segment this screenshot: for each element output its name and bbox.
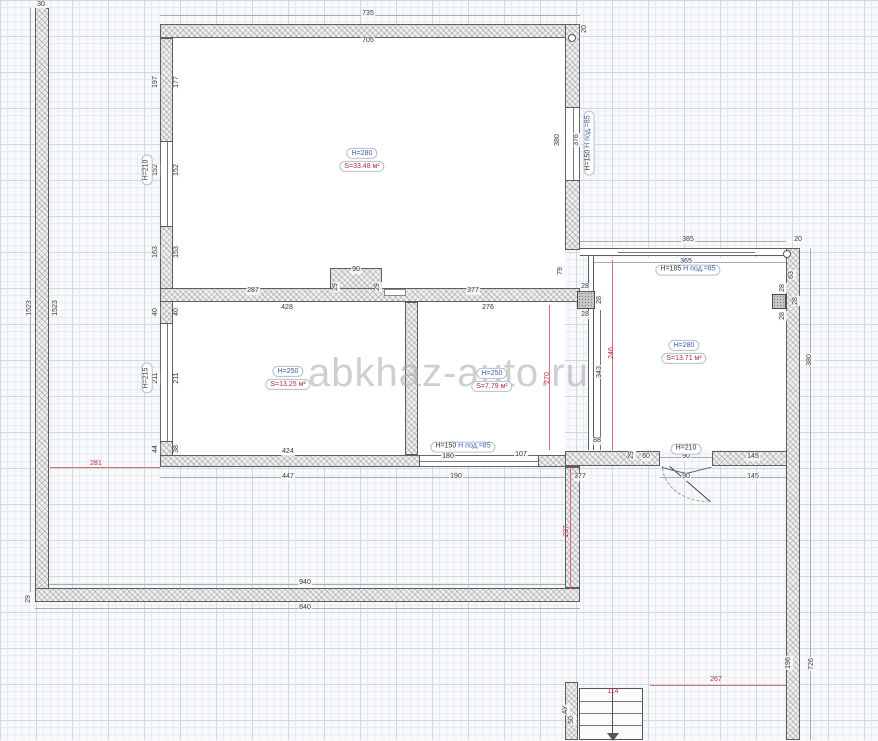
wall-segment-left-boundary [35,8,49,592]
opening-label: H=210 [142,155,153,186]
opening-label: H=150 H под.=85 [584,110,595,175]
dimension-label: 270 [544,371,552,385]
dimension-label: 1523 [52,299,60,317]
dimension-label: 705 [361,37,375,45]
dimension-label: 90 [681,473,691,481]
room-label-room-right: H=280S=13.71 м² [661,340,706,364]
dimension-label: 114 [606,688,619,696]
stair-tread [580,701,642,702]
dimension-label: 376 [573,133,581,147]
dimension-label: 343 [596,365,604,379]
window-opening-right-room-top [618,248,755,256]
opening-label: H=210 [671,444,702,455]
dimension-label: 79 [557,266,565,276]
door-swing-arc [662,466,708,502]
room-label-room-lower-left: H=250S=13.25 м² [265,366,310,390]
dimension-line [600,310,601,450]
room-height-label: H=280 [347,148,378,159]
floor-plan-canvas: abkhaz-auto.ru 3073570520197177152152163… [0,0,878,740]
wall-segment-top-room-right-b [565,180,580,250]
dimension-label: 28 [596,295,604,305]
wall-segment-top [160,24,580,38]
dimension-label: 377 [466,287,480,295]
room-height-label: H=250 [273,366,304,377]
opening-sill-text: H под.=85 [585,115,592,149]
dimension-label: 211 [152,371,160,384]
dimension-label: 281 [89,460,103,468]
stair-center-line [612,689,613,739]
dimension-label: 28 [580,311,590,319]
dimension-label: 246 [608,346,616,360]
column-right-pilaster [772,294,786,309]
dimension-label: 50 [568,715,576,725]
dimension-label: 190 [449,473,463,481]
room-area-label: S=13.25 м² [265,379,310,390]
opening-sill-text: H под.=85 [456,443,490,450]
room-area-label: S=13.71 м² [661,353,706,364]
room-height-label: H=250 [477,368,508,379]
dimension-label: 29 [25,594,33,604]
dimension-label: 38 [173,444,181,454]
stair-tread [580,725,642,726]
window-opening-left-lower [160,324,173,441]
dimension-label: 145 [746,473,760,481]
window-opening-left-upper [160,142,173,226]
dimension-label: 211 [173,371,181,384]
dimension-label: 163 [152,245,160,259]
dimension-label: 28 [779,283,787,293]
dimension-label: 88 [592,437,602,445]
dimension-label: 267 [709,676,723,684]
dimension-label: 20 [581,24,589,34]
column-marker-circle [568,34,576,42]
dimension-label: 107 [514,451,528,459]
dimension-label: 424 [281,448,295,456]
dimension-label: 726 [808,657,816,671]
opening-sill-text: H под.=85 [681,266,715,273]
dimension-label: 840 [298,604,312,612]
wall-notch-opening [384,289,406,296]
wall-segment-bottom-left [160,455,420,467]
dimension-line [160,477,580,478]
dimension-label: 197 [152,75,160,89]
wall-segment-top-room-left-b [160,226,173,324]
dimension-label: 20 [793,236,803,244]
dimension-label: 380 [806,353,814,367]
dimension-label: 287 [246,287,260,295]
room-label-room-lower-middle: H=250S=7.79 м² [471,368,512,392]
dimension-label: 196 [785,656,793,670]
dimension-label: 28 [792,296,800,306]
dimension-label: 180 [441,453,455,461]
dimension-label: 40 [152,307,160,317]
room-label-room-top: H=280S=33.48 м² [339,148,384,172]
dimension-label: 30 [36,1,46,9]
dimension-label: 28 [580,283,590,291]
dimension-label: 940 [298,579,312,587]
opening-label: H=150 H под.=85 [430,442,495,453]
dimension-label: 28 [779,311,787,321]
dimension-label: 1523 [26,299,34,317]
wall-segment-top-room-left-a [160,38,173,142]
dimension-label: 385 [681,236,695,244]
dimension-label: 276 [481,304,495,312]
dimension-label: 377 [573,473,587,481]
opening-height-text: H=150 [585,150,592,171]
dimension-label: 380 [554,133,562,147]
room-area-label: S=33.48 м² [339,161,384,172]
red-dimension-line [50,467,160,468]
wall-segment-extension-bottom [35,588,580,602]
opening-height-text: H=215 [143,368,150,389]
dimension-label: 29 [628,450,636,460]
column-left [577,291,595,309]
opening-height-text: H=185 [660,266,681,273]
dimension-label: 44 [152,444,160,454]
room-height-label: H=280 [669,340,700,351]
dimension-label: 40 [173,307,181,317]
dimension-label: 90 [351,266,361,274]
stair-tread [580,713,642,714]
dimension-label: 428 [280,304,294,312]
dimension-label: 29 [374,282,382,292]
dimension-label: 152 [173,163,181,177]
dimension-label: 237 [563,524,571,538]
dimension-label: 145 [746,453,760,461]
opening-label: H=215 [142,363,153,394]
dimension-label: 177 [173,75,181,89]
dimension-label: 29 [332,282,340,292]
opening-height-text: H=210 [143,160,150,181]
column-marker-circle [783,250,791,258]
red-dimension-line [650,685,786,686]
wall-segment-interior-horizontal [160,288,580,302]
dimension-label: 735 [361,10,375,18]
dimension-label: АУ [562,705,570,716]
dimension-label: 152 [152,163,160,177]
dimension-label: 60 [641,453,651,461]
dimension-label: 447 [281,473,295,481]
dimension-label: 63 [788,270,796,280]
opening-label: H=185 H под.=85 [655,265,720,276]
opening-height-text: H=210 [676,445,697,452]
room-area-label: S=7.79 м² [471,381,512,392]
dimension-label: 153 [173,245,181,259]
opening-height-text: H=150 [435,443,456,450]
